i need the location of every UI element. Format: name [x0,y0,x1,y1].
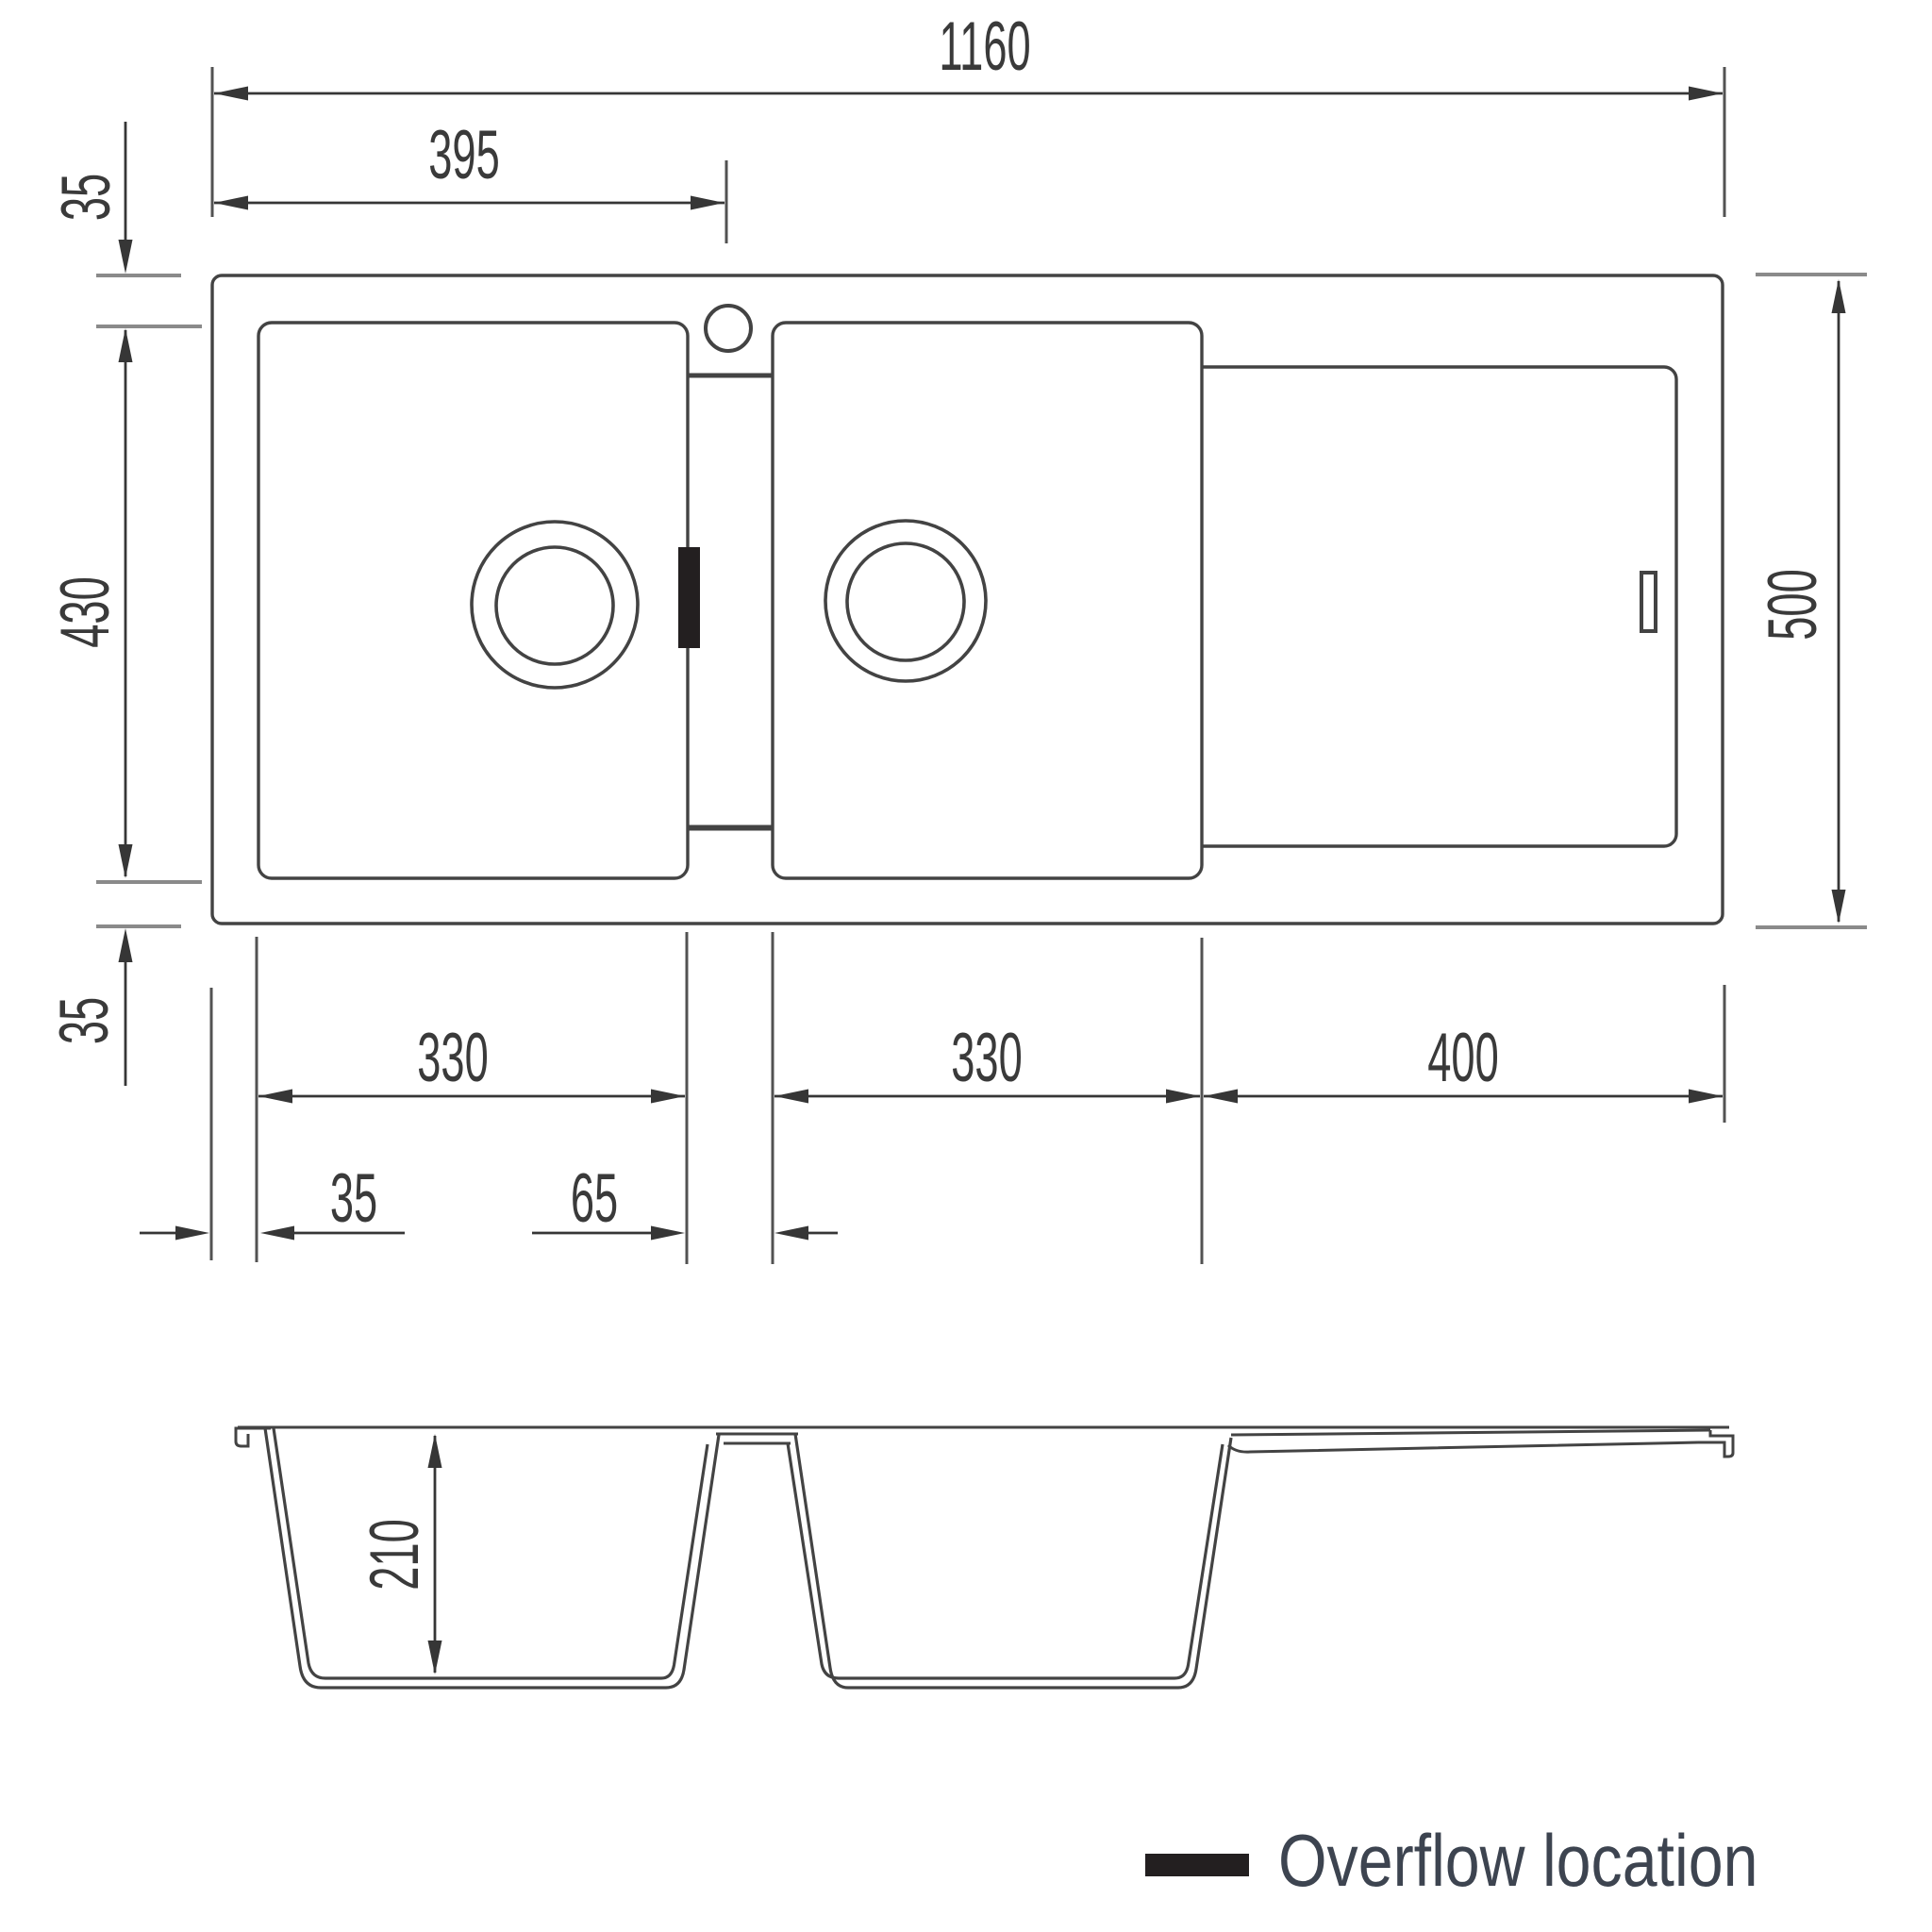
svg-text:1160: 1160 [939,8,1030,85]
svg-text:35: 35 [330,1159,377,1237]
svg-text:Overflow location: Overflow location [1278,1820,1757,1902]
svg-text:500: 500 [1754,569,1831,640]
svg-text:430: 430 [46,576,124,647]
svg-text:330: 330 [951,1019,1022,1096]
svg-text:65: 65 [571,1159,618,1237]
svg-text:35: 35 [47,174,125,221]
svg-text:395: 395 [428,116,499,193]
svg-text:35: 35 [45,997,123,1044]
svg-text:330: 330 [417,1019,488,1096]
svg-text:400: 400 [1427,1019,1498,1096]
svg-text:210: 210 [356,1519,433,1590]
